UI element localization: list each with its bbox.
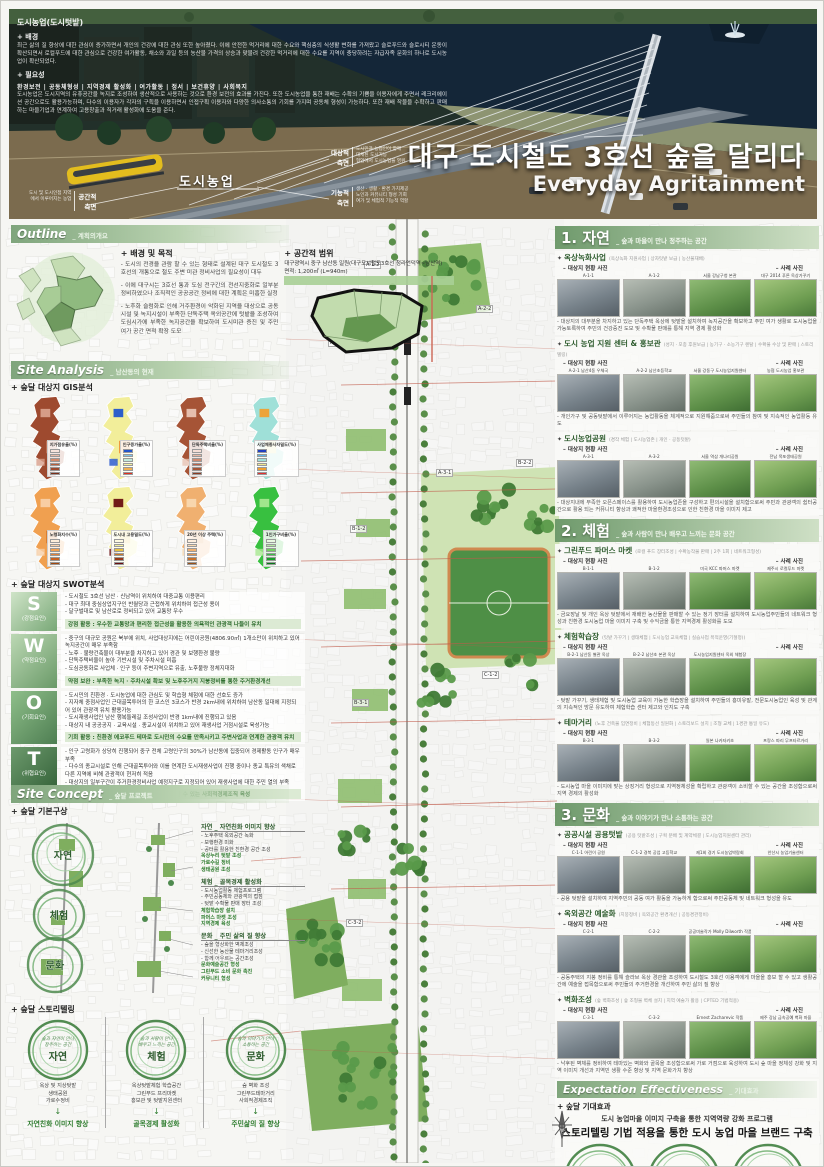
program-subsection: ✦공공시설 공용텃밭(공용 텃밭조성 | 구획 분배 및 계약체결 | 도시농업… (555, 828, 819, 905)
concept-note-goal: 그린푸드 소비 문화 촉진 (201, 969, 305, 976)
case-photos-label: – 사례 사진 (776, 264, 803, 272)
concept-zone-nature: 자연 (54, 849, 72, 862)
gis-map: 사업체종사자밀도(%) (230, 395, 299, 481)
section-number-name: 2. 체험 (561, 520, 610, 541)
map-point-label: B-3-1 (352, 699, 369, 707)
photo-thumbnail: 제1회 경기 도시농업박람회 (689, 850, 752, 894)
gis-legend-swatch (50, 463, 60, 467)
diamond-icon: ✦ (557, 341, 562, 348)
site-photo (623, 1021, 686, 1059)
photo-row-labels: – 대상지 현황 사진– 사례 사진 (557, 557, 817, 565)
gis-legend: 도시내 고용밀도(%) (111, 530, 153, 567)
outline-purpose: + 배경 및 목적 - 도시의 전경을 관람 할 수 있는 형태로 설계된 대구… (121, 246, 279, 366)
map-point-label: B-1-2 (350, 525, 367, 533)
subsection-note: (옥상녹화 지원사업 | 상자텃밭 보급 | 농산물재배) (609, 257, 705, 262)
site-photo (557, 460, 620, 498)
expectation-line1: 도시 농업마을 이미지 구축을 통한 지역역량 강화 프로그램 (557, 1114, 817, 1124)
gis-legend-swatch (123, 472, 133, 476)
section-number-name: 1. 자연 (561, 227, 610, 248)
subsection-caption: - 대상지내에 부족한 오픈스페이스를 활용하여 도시농업존을 구성하고 편의시… (557, 500, 817, 514)
gis-legend-title: 1인가구비율(%) (266, 532, 296, 538)
expectation-title: Expectation Effectiveness (563, 1083, 723, 1096)
case-photo (689, 744, 752, 782)
subsection-name: 테마거리 (564, 718, 592, 727)
swot-item: - 도시민의 친환경 · 도시농업에 대한 관심도 및 학습형 체험에 대한 선… (65, 693, 301, 701)
section-header: 2. 체험_ 숲과 사람이 만나 배우고 느끼는 문화 공간 (555, 519, 819, 542)
storytelling-section: + 숲달 스토리텔링 숲과 자연이 만나 정주하는 공간자연옥상 및 지상텃밭생… (11, 1002, 303, 1128)
down-arrow-icon: ↓ (112, 1108, 202, 1116)
photo-label: Ernest Zacharevic 작품 (689, 1015, 752, 1021)
north-arrow-icon (549, 1109, 575, 1149)
swot-letter-label: (강점요인) (11, 614, 57, 622)
subsection-title: ✦그린푸드 파머스 마켓(로컬 푸드 장터조성 | 수확농작물 판매 | 2주 … (557, 545, 817, 556)
outline-bullet: - 이에 대구시는 3호선 통과 도심 전구간의 전선지중화로 일부분 정비하였… (121, 282, 279, 299)
storytelling-item: 생태공원 (13, 1091, 103, 1099)
site-photo (623, 935, 686, 973)
swot-item: - 달구벌대로 및 남산로로 정비되고 있어 교통망 우수 (65, 609, 301, 617)
expectation-ring-text: 하늘 정원 아트 빌리지옥외공간 예술화를 통한 예술마을 브랜딩 (731, 1143, 811, 1167)
gis-map: 지가점유율(%) (11, 395, 80, 481)
gis-legend-swatch (192, 449, 202, 453)
program-subsection: ✦테마거리(노후 건축물 입면정비 | 체험동선 일원화 | 스토리보드 설치 … (555, 716, 819, 800)
swot-row: O(기회요인)- 도시민의 친환경 · 도시농업에 대한 관심도 및 학습형 체… (11, 691, 305, 745)
site-photos-label: – 대상지 현황 사진 (563, 1006, 608, 1014)
storytelling-tagline: 숲과 이야기가 만나 소통하는 공간 (237, 1037, 274, 1049)
subsection-name: 공공시설 공용텃밭 (564, 830, 623, 839)
photo-label: 공공미술작가 Molly Dilworth 작품 (689, 929, 752, 935)
swot-letter-label: (기회요인) (11, 713, 57, 721)
concept-note-goal: 지역경제 육성 (201, 921, 305, 928)
gis-legend-swatch (192, 472, 202, 476)
subsection-note: (공용 텃밭조성 | 구획 분배 및 계약체결 | 도시농업지원센터 관리) (626, 834, 751, 839)
gis-legend-swatch (187, 553, 197, 557)
purpose-title: + 배경 및 목적 (121, 248, 279, 259)
subsection-title: ✦도시 농업 지원 센터 & 홍보관(성지 · 모종 후원보급 | 농기구 · … (557, 338, 817, 358)
case-photos-label: – 사례 사진 (776, 841, 803, 849)
swot-row: W(약점요인)- 중구의 대규모 공원은 북부에 위치, 사업대상지에는 어린이… (11, 634, 305, 688)
concept-note-goal: 가로수길 정비 (201, 860, 305, 867)
photo-label: 프랑스 파리 무프타르거리 (754, 738, 817, 744)
subsection-note: (지붕정비 | 옥외공간 환경개선 | 공동경관정비) (619, 913, 709, 918)
photo-thumbnails: C-2-1C-2-2공공미술작가 Molly Dilworth 작품 (557, 929, 817, 973)
site-photo (557, 658, 620, 696)
photo-thumbnails: B-1-1B-1-2미국 KCC 파머스 마켓제주시 로컬푸드 마켓 (557, 566, 817, 610)
swot-section: + 숲달 대상지 SWOT분석 S(강점요인)- 도시철도 3호선 남산 · 신… (11, 577, 305, 804)
photo-row-labels: – 대상지 현황 사진– 사례 사진 (557, 359, 817, 367)
photo-thumbnail: B-3-1 (557, 738, 620, 782)
site-photos-label: – 대상지 현황 사진 (563, 920, 608, 928)
urban-farming-diagram: 도시농업 도시 및 도시인접 지역 에서 이루어지는 농업 공간적 측면 대상적… (29, 147, 449, 213)
storytelling-ring: 숲과 이야기가 만나 소통하는 공간문화 (225, 1019, 287, 1081)
concept-note-goal: 체험학습장 설치 (201, 908, 305, 915)
gis-map: 도시내 고용밀도(%) (84, 485, 153, 571)
gis-legend-swatch (114, 562, 124, 566)
subsection-caption: - 도시농업 마을 이미지에 맞는 상징거리 형성으로 지역정체성을 확립하고 … (557, 784, 817, 798)
site-photos-label: – 대상지 현황 사진 (563, 264, 608, 272)
gis-legend-swatch (257, 458, 267, 462)
case-photo (689, 1021, 752, 1059)
storytelling-item: 숲 벽화 조성 (210, 1083, 301, 1091)
site-analysis-note: _ 남산동의 현재 (110, 366, 154, 376)
storytelling-item: 가로수정비 (13, 1098, 103, 1106)
concept-note-head: 체험 _ 골목경제 활성화 (201, 877, 305, 887)
diamond-icon: ✦ (557, 634, 562, 641)
diamond-icon: ✦ (557, 720, 562, 727)
necessity-text: 도시농업은 도시지역의 유휴공간을 녹지로 조성하여 생산적으로 사용하는 것으… (17, 92, 447, 115)
photo-thumbnail: C-1-2 경북 공업 고등학교 (623, 850, 686, 894)
gis-legend-swatch (123, 467, 133, 471)
gis-legend-swatch (50, 458, 60, 462)
gis-map: 1인가구비율(%) (230, 485, 299, 571)
gis-legend: 노령화지수(%) (47, 530, 80, 567)
photo-thumbnail: B-1-2 (623, 566, 686, 610)
storytelling-column: 숲과 사람이 만나 배우고 느끼는 공간체험옥상텃밭체험 학습공간그린푸드 프리… (110, 1017, 205, 1128)
aspect-functional: 기능적 측면 생산 · 생활 · 환경 가치제공 노인과 커뮤니티 형성 기회 … (331, 187, 408, 207)
concept-note-head: 자연 _ 자연친화 이미지 향상 (201, 822, 305, 832)
site-photo (557, 374, 620, 412)
outline-scope: + 공간적 범위 대구광역시 중구 남산동 일원(대구도시철도3호선 청라언덕역… (284, 246, 456, 366)
gis-legend-swatch (50, 539, 60, 543)
background-label: + 배경 (17, 32, 447, 42)
site-concept-bar: Site Concept _ 숲달 프로젝트 (11, 785, 289, 803)
photo-thumbnail: A-3-2 (623, 454, 686, 498)
case-photo (689, 572, 752, 610)
diamond-icon: ✦ (557, 255, 562, 262)
title-korean: 대구 도시철도 3호선 숲을 달리다 (408, 135, 805, 174)
concept-annotations: 자연 _ 자연친화 이미지 향상- 노후주택 옥외공간 녹화- 보행환경 미화-… (201, 819, 305, 997)
subsection-name: 옥외공간 예술화 (564, 909, 616, 918)
diamond-icon: ✦ (557, 548, 562, 555)
expectation-ring-text: 에브리데이 어그리테인먼트옥상텃밭 조성을 통한 생태마을 브랜딩 (563, 1143, 643, 1167)
concept-note-goal: 생태공원 조성 (201, 867, 305, 874)
swot-letter-box: S(강점요인) (11, 592, 57, 631)
storytelling-ring-text: 숲과 자연이 만나 정주하는 공간자연 (27, 1019, 89, 1081)
diamond-icon: ✦ (557, 911, 562, 918)
gis-legend-swatch (123, 449, 133, 453)
storytelling-title: + 숲달 스토리텔링 (11, 1004, 303, 1015)
section-tagline: _ 숲과 마을이 만나 정주하는 공간 (616, 236, 707, 245)
concept-diagram-left: 자연 체험 문화 (11, 819, 115, 997)
swot-item: - 도심공동화로 사업체 · 인구 등이 주변지역으로 유출, 노후불량 정체지… (65, 666, 301, 674)
site-photo (557, 279, 620, 317)
storytelling-ring-text: 숲과 사람이 만나 배우고 느끼는 공간체험 (125, 1019, 187, 1081)
photo-row-labels: – 대상지 현황 사진– 사례 사진 (557, 445, 817, 453)
photo-label: 제1회 경기 도시농업박람회 (689, 850, 752, 856)
daegu-district-map (11, 246, 115, 350)
site-photo (557, 935, 620, 973)
site-photo (557, 856, 620, 894)
storytelling-item: 그린푸드 프리마켓 (112, 1091, 202, 1099)
swot-item: - 다수의 종교시설로 인해 근대골목투어와 이를 연계한 도시재생사업이 진행… (65, 764, 301, 779)
gis-legend: 단독주택비율(%) (189, 440, 226, 477)
storytelling-column: 숲과 자연이 만나 정주하는 공간자연옥상 및 지상텃밭생태공원가로수정비↓자연… (11, 1017, 106, 1128)
subsection-title: ✦벽화조성(숲 벽화조성 | 숲 조형물 벽체 설치 | 지역 예술가 활용 |… (557, 994, 817, 1005)
photo-thumbnails: B-3-1B-3-2일본 나카자키초프랑스 파리 무프타르거리 (557, 738, 817, 782)
photo-thumbnail: 서울 강남구청 본관 (689, 273, 752, 317)
section-tagline: _ 숲과 사람이 만나 배우고 느끼는 문화 공간 (616, 529, 735, 538)
gis-map: 인구증가율(%) (84, 395, 153, 481)
photo-thumbnail: 서울 강동구 도시농업지원센터 (689, 368, 752, 412)
gis-map: 노령화지수(%) (11, 485, 80, 571)
gis-legend-swatch (50, 562, 60, 566)
storytelling-ring: 숲과 자연이 만나 정주하는 공간자연 (27, 1019, 89, 1081)
section-number-name: 3. 문화 (561, 804, 610, 825)
site-photo (557, 744, 620, 782)
concept-note-head: 문화 _ 주민 삶의 질 향상 (201, 931, 305, 941)
case-photo (754, 1021, 817, 1059)
map-point-label: A-3-1 (436, 469, 453, 477)
photo-thumbnail: 농협 도시농업 홍보관 (754, 368, 817, 412)
photo-thumbnail: A-2-1 남산4동 우체국 (557, 368, 620, 412)
aspect-target: 대상적 측면 도시민과 농업인이 함께 대체된 도시기능 협업에서 도시농업을 … (331, 147, 405, 167)
gis-legend-swatch (192, 454, 202, 458)
case-photo (689, 658, 752, 696)
storytelling-tagline: 숲과 사람이 만나 배우고 느끼는 공간 (138, 1037, 175, 1049)
photo-thumbnails: C-3-1C-3-2Ernest Zacharevic 작품제주 강남 금속공예… (557, 1015, 817, 1059)
storytelling-item: 사회적경제조직 (210, 1098, 301, 1106)
photo-thumbnail (754, 929, 817, 973)
case-photos-label: – 사례 사진 (776, 643, 803, 651)
site-photos-label: – 대상지 현황 사진 (563, 729, 608, 737)
down-arrow-icon: ↓ (13, 1108, 103, 1116)
swot-letter-box: W(약점요인) (11, 634, 57, 688)
gis-map-grid: 지가점유율(%)인구증가율(%)단독주택비율(%)사업체종사자밀도(%)노령화지… (11, 395, 299, 571)
swot-letter-box: O(기회요인) (11, 691, 57, 745)
section-tagline: _ 숲과 이야기가 만나 소통하는 공간 (616, 813, 713, 822)
concept-note-item: - 보행환경 미화 (201, 840, 305, 847)
swot-highlight: 기회 활용 : 친환경 에코푸드 테마로 도시민의 수요를 만족시키고 주변사업… (65, 732, 301, 742)
expectation-note: _ 기대효과 (729, 1085, 758, 1095)
gis-legend-swatch (50, 467, 60, 471)
outline-bar-title: Outline (17, 227, 66, 241)
photo-thumbnail: B-3-2 (623, 738, 686, 782)
subsection-name: 그린푸드 파머스 마켓 (564, 546, 632, 555)
gis-legend-swatch (50, 544, 60, 548)
diamond-icon: ✦ (557, 997, 562, 1004)
gis-legend-title: 도시내 고용밀도(%) (114, 532, 150, 538)
subsection-name: 도시 농업 지원 센터 & 홍보관 (564, 339, 661, 348)
swot-highlight: 약점 보완 : 부족한 녹지 · 주차시설 확보 및 노후주거지 지붕정비를 통… (65, 676, 301, 686)
swot-letter: W (11, 637, 57, 656)
storytelling-ring-text: 숲과 이야기가 만나 소통하는 공간문화 (225, 1019, 287, 1081)
swot-title: + 숲달 대상지 SWOT분석 (11, 579, 305, 590)
storytelling-tagline: 숲과 자연이 만나 정주하는 공간 (42, 1037, 75, 1049)
photo-thumbnail: 미국 KCC 파머스 마켓 (689, 566, 752, 610)
expectation-bar: Expectation Effectiveness _ 기대효과 (557, 1081, 817, 1098)
aspect-spatial: 도시 및 도시인접 지역 에서 이루어지는 농업 공간적 측면 (29, 191, 96, 211)
storytelling-result: 골목경제 활성화 (112, 1118, 202, 1128)
concept-subtitle: + 숲달 기본구상 (11, 806, 311, 817)
subsection-name: 옥상녹화사업 (564, 253, 606, 262)
photo-thumbnail: 안산시 농업기술센터 (754, 850, 817, 894)
case-photo (754, 935, 817, 973)
photo-label: 대구 2014 푸른 옥상가꾸기 (754, 273, 817, 279)
concept-note-item: - 숲을 형상화한 벽체조성 (201, 942, 305, 949)
program-subsection: ✦벽화조성(숲 벽화조성 | 숲 조형물 벽체 설치 | 지역 예술가 활용 |… (555, 993, 819, 1077)
swot-item: - 대상지 내 공공공지 · 교육시설 · 종교시설이 위치하고 있어 재생사업… (65, 723, 301, 731)
expectation-ring-text: 그린푸드 컬처라이프마을 파머스마켓 조성을 통한 체험마을 브랜딩 (647, 1143, 727, 1167)
photo-label: C-1-2 경북 공업 고등학교 (623, 850, 686, 856)
concept-zone-experience: 체험 (50, 909, 68, 922)
subsection-title: ✦체험학습장(텃밭 가꾸기 | 생태체험 | 도시농업 교육체험 | 실습사업 … (557, 631, 817, 642)
scope-location: 대구광역시 중구 남산동 일원(대구도시철도3호선 청라언덕역~남산역) (284, 261, 456, 269)
photo-thumbnail: A-1-2 (623, 273, 686, 317)
swot-letter-label: (위협요인) (11, 769, 57, 777)
photo-label: 제주 강남 금속공예 벽화 마을 (754, 1015, 817, 1021)
gis-legend: 1인가구비율(%) (263, 530, 299, 567)
site-analysis-title: Site Analysis (17, 363, 104, 377)
gis-legend-swatch (114, 548, 124, 552)
site-photo (623, 572, 686, 610)
storytelling-item: 홍보관 및 텃밭지원센터 (112, 1098, 202, 1106)
photo-thumbnails: B-2-1 남산동 별관 옥상B-2-2 남산초 본관 옥상도시농업지원센터 옥… (557, 652, 817, 696)
outline-bullet: - 도시의 전경을 관람 할 수 있는 형태로 설계된 대구 도시철도 3호선의… (121, 261, 279, 278)
gis-legend-swatch (123, 454, 133, 458)
concept-zone-culture: 문화 (46, 960, 65, 972)
concept-note-item: - 텃밭 수확물 판매 장터 조성 (201, 901, 305, 908)
photo-thumbnail: 도시농업지원센터 옥외 체험장 (689, 652, 752, 696)
subsection-title: ✦도시농업공원(경작 체험 | 도시농업존 | 개인 · 공동텃밭) (557, 433, 817, 444)
subsection-note: (텃밭 가꾸기 | 생태체험 | 도시농업 교육체험 | 실습사업 목적운영(기… (602, 636, 745, 641)
gis-legend-swatch (50, 548, 60, 552)
gis-legend-swatch (187, 539, 197, 543)
storytelling-zone-label: 체험 (147, 1048, 165, 1063)
photo-thumbnails: A-1-1A-1-2서울 강남구청 본관대구 2014 푸른 옥상가꾸기 (557, 273, 817, 317)
photo-row-labels: – 대상지 현황 사진– 사례 사진 (557, 841, 817, 849)
storytelling-item: 옥상 및 지상텃밭 (13, 1083, 103, 1091)
expectation-ring: 에브리데이 어그리테인먼트옥상텃밭 조성을 통한 생태마을 브랜딩 (563, 1143, 643, 1167)
photo-thumbnail: C-2-2 (623, 929, 686, 973)
site-concept-section: Site Concept _ 숲달 프로젝트 + 숲달 기본구상 자연 체험 (11, 785, 311, 997)
photo-thumbnail: A-2-2 남산초등학교 (623, 368, 686, 412)
gis-legend-swatch (192, 467, 202, 471)
section-header: 3. 문화_ 숲과 이야기가 만나 소통하는 공간 (555, 803, 819, 826)
case-photo (754, 572, 817, 610)
gis-legend-swatch (187, 557, 197, 561)
swot-letter-label: (약점요인) (11, 656, 57, 664)
case-photos-label: – 사례 사진 (776, 1006, 803, 1014)
site-photo (623, 658, 686, 696)
photo-thumbnail: B-2-2 남산초 본관 옥상 (623, 652, 686, 696)
gis-legend-swatch (257, 454, 267, 458)
gis-legend-swatch (266, 557, 276, 561)
gis-legend-swatch (187, 548, 197, 552)
photo-row-labels: – 대상지 현황 사진– 사례 사진 (557, 729, 817, 737)
subsection-caption: - 대상지의 대부분을 차지하고 있는 단독주택 옥상에 텃밭을 설치하여 녹지… (557, 319, 817, 333)
poster-root: A-1-2A-2-1A-2-2A-3-1B-1-2B-2-2B-3-1C-1-2… (0, 0, 824, 1167)
program-subsection: ✦그린푸드 파머스 마켓(로컬 푸드 장터조성 | 수확농작물 판매 | 2주 … (555, 544, 819, 628)
gis-legend-swatch (257, 472, 267, 476)
gis-legend-swatch (50, 557, 60, 561)
gis-legend-swatch (50, 449, 60, 453)
program-subsection: ✦옥상녹화사업(옥상녹화 지원사업 | 상자텃밭 보급 | 농산물재배)– 대상… (555, 251, 819, 335)
gis-legend-swatch (50, 472, 60, 476)
gis-legend-title: 지가점유율(%) (50, 442, 77, 448)
gis-legend-swatch (114, 553, 124, 557)
section-header: 1. 자연_ 숲과 마을이 만나 정주하는 공간 (555, 226, 819, 249)
subsection-note: (숲 벽화조성 | 숲 조형물 벽체 설치 | 지역 예술가 활용 | CPTE… (595, 999, 739, 1004)
site-photos-label: – 대상지 현황 사진 (563, 445, 608, 453)
swot-item: - 중구의 대규모 공원은 북부에 위치, 사업대상지에는 어린이공원(4806… (65, 636, 301, 651)
gis-legend-swatch (50, 454, 60, 458)
site-photo (623, 744, 686, 782)
subsection-name: 체험학습장 (564, 632, 599, 641)
swot-letter: S (11, 595, 57, 614)
storytelling-result: 주민삶의 질 향상 (210, 1118, 301, 1128)
concept-diagram-right (119, 819, 197, 997)
swot-body: - 중구의 대규모 공원은 북부에 위치, 사업대상지에는 어린이공원(4806… (61, 634, 305, 688)
case-photos-label: – 사례 사진 (776, 729, 803, 737)
map-point-label: B-2-2 (516, 459, 533, 467)
swot-item: - 도시철도 3호선 남산 · 신남역이 위치하여 대중교통 이용편리 (65, 594, 301, 602)
expectation-ring: 하늘 정원 아트 빌리지옥외공간 예술화를 통한 예술마을 브랜딩 (731, 1143, 811, 1167)
case-photo (689, 460, 752, 498)
site-photo (623, 460, 686, 498)
photo-thumbnail: Ernest Zacharevic 작품 (689, 1015, 752, 1059)
expectation-section: Expectation Effectiveness _ 기대효과 + 숲달 기대… (555, 1079, 819, 1167)
program-subsection: ✦도시 농업 지원 센터 & 홍보관(성지 · 모종 후원보급 | 농기구 · … (555, 337, 819, 430)
photo-label: 도시농업지원센터 옥외 체험장 (689, 652, 752, 658)
site-analysis-section: Site Analysis _ 남산동의 현재 + 숲달 대상지 GIS분석 지… (11, 361, 299, 571)
gis-legend-swatch (257, 449, 267, 453)
gis-legend-title: 단독주택비율(%) (192, 442, 223, 448)
gis-title: + 숲달 대상지 GIS분석 (11, 382, 299, 393)
photo-row-labels: – 대상지 현황 사진– 사례 사진 (557, 643, 817, 651)
background-text: 최근 삶의 질 향상에 대한 관심이 증가하면서 개인의 건강에 대한 관심 또… (17, 43, 447, 66)
photo-thumbnail: A-1-1 (557, 273, 620, 317)
subsection-caption: - 낙후된 벽체를 정비하여 테마있는 벽화와 골목을 조성함으로써 가로 거점… (557, 1061, 817, 1075)
site-photos-label: – 대상지 현황 사진 (563, 557, 608, 565)
case-photos-label: – 사례 사진 (776, 445, 803, 453)
photo-thumbnail: 프랑스 파리 무프타르거리 (754, 738, 817, 782)
case-photo (754, 460, 817, 498)
diamond-icon: ✦ (557, 436, 562, 443)
gis-map: 20년 이상 주택(%) (157, 485, 226, 571)
gis-legend-swatch (114, 539, 124, 543)
gis-legend-title: 사업체종사자밀도(%) (257, 442, 296, 448)
case-photo (754, 279, 817, 317)
photo-thumbnail (754, 652, 817, 696)
gis-legend-swatch (187, 544, 197, 548)
gis-legend-swatch (266, 562, 276, 566)
gis-map: 단독주택비율(%) (157, 395, 226, 481)
photo-thumbnail: A-3-1 (557, 454, 620, 498)
subsection-caption: - 금요장날 및 개인 옥상 텃밭에서 재배한 농산물을 판매할 수 있는 정기… (557, 612, 817, 626)
intro-text-overlay: 도시농업(도시텃밭) + 배경 최근 삶의 질 향상에 대한 관심이 증가하면서… (17, 17, 447, 116)
case-photo (689, 279, 752, 317)
photo-thumbnail: C-3-1 (557, 1015, 620, 1059)
outline-bar: Outline _ 계획의개요 (11, 225, 289, 243)
swot-item: - 지자체 중점사업인 근대골목투어의 한 코스인 3코스가 반경 2km내에 … (65, 700, 301, 715)
photo-thumbnail: C-2-1 (557, 929, 620, 973)
gis-legend-swatch (266, 544, 276, 548)
swot-body: - 도시민의 친환경 · 도시농업에 대한 관심도 및 학습형 체험에 대한 선… (61, 691, 305, 745)
photo-thumbnail: 제주 강남 금속공예 벽화 마을 (754, 1015, 817, 1059)
case-photo (689, 935, 752, 973)
subsection-title: ✦옥외공간 예술화(지붕정비 | 옥외공간 환경개선 | 공동경관정비) (557, 908, 817, 919)
gis-legend-swatch (257, 467, 267, 471)
photo-thumbnails: A-3-1A-3-2서울 역삼 개나리공원전남 목포생태공원 (557, 454, 817, 498)
storytelling-item: 그린푸드테마거리 (210, 1091, 301, 1099)
storytelling-item: 옥상텃밭체험 학습공간 (112, 1083, 202, 1091)
storytelling-zone-label: 문화 (246, 1048, 264, 1063)
subsection-note: (경작 체험 | 도시농업존 | 개인 · 공동텃밭) (609, 438, 691, 443)
concept-note-item: - 노후주택 옥외공간 녹화 (201, 833, 305, 840)
down-arrow-icon: ↓ (210, 1108, 301, 1116)
site-photos-label: – 대상지 현황 사진 (563, 643, 608, 651)
gis-legend-swatch (266, 539, 276, 543)
gis-legend-swatch (257, 463, 267, 467)
